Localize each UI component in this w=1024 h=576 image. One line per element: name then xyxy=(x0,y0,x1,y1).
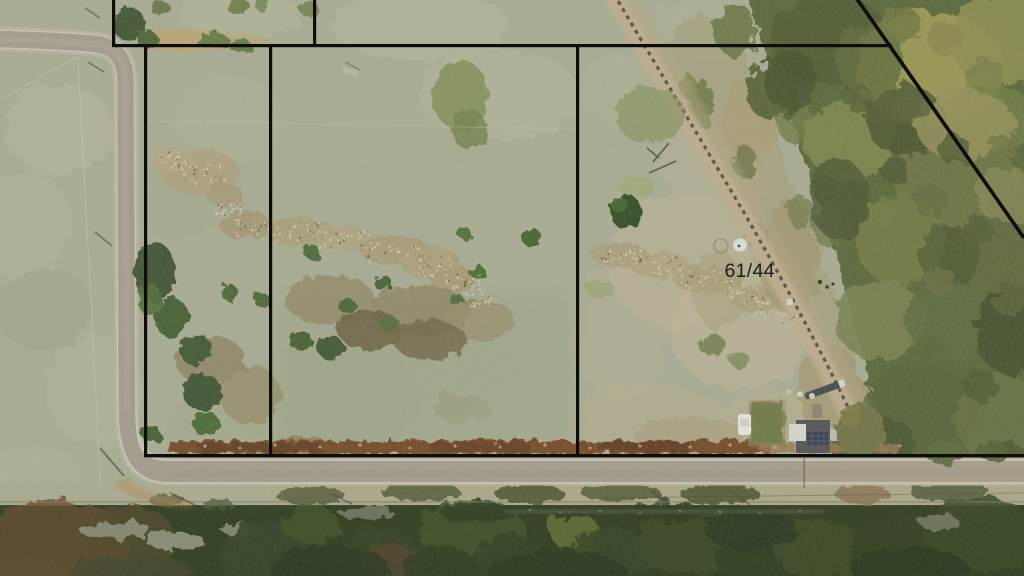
svg-text:61/44: 61/44 xyxy=(725,260,775,282)
